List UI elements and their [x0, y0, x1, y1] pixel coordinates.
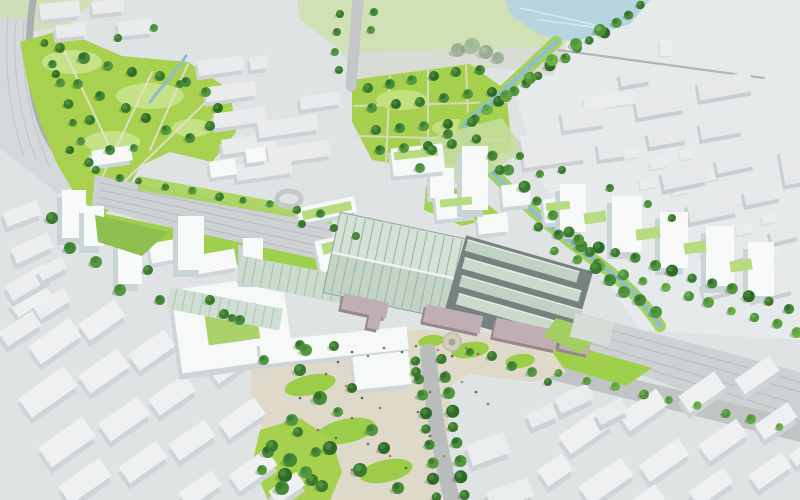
plaza-circle-center [449, 339, 456, 346]
street-north [351, 0, 358, 86]
masterplan-svg: Aerial masterplan rendering of a station… [0, 0, 800, 500]
masterplan-rendering: Aerial masterplan rendering of a station… [0, 0, 800, 500]
